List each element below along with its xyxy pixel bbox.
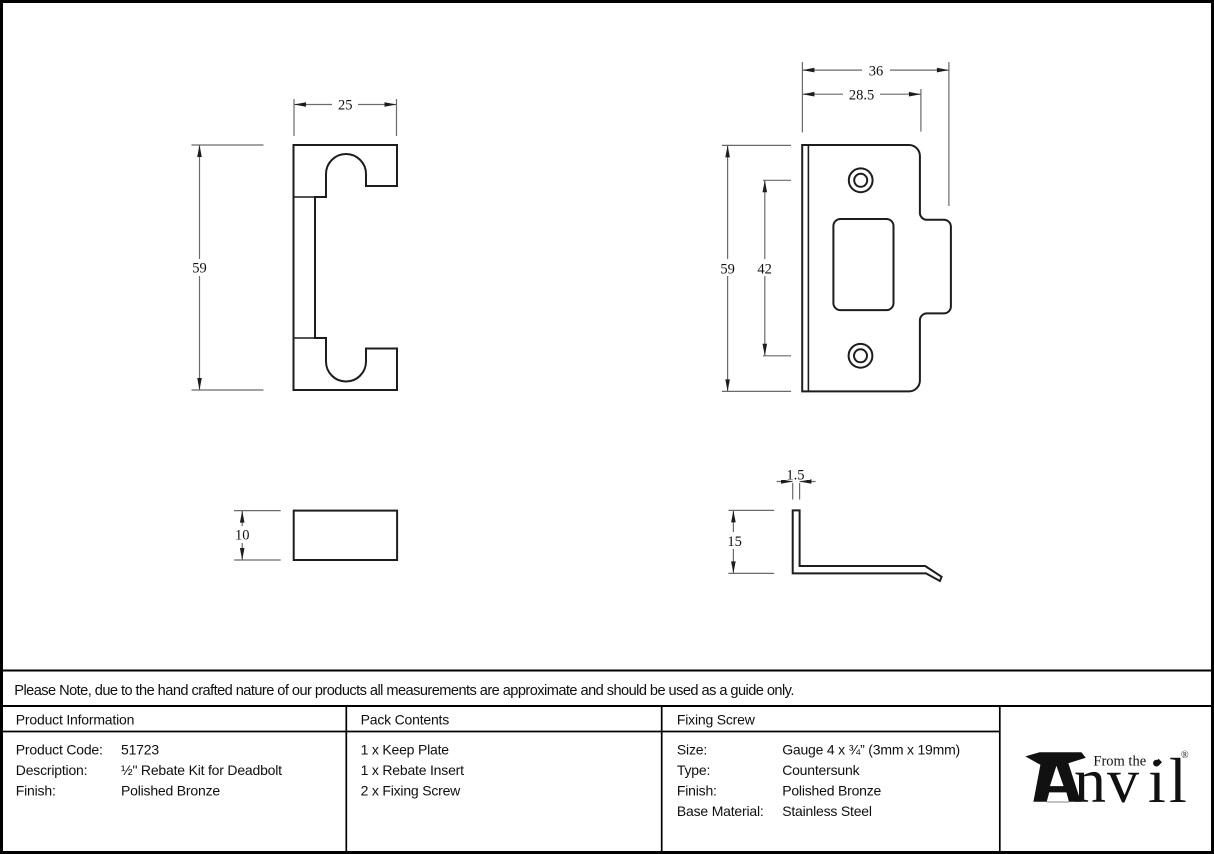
svg-text:®: ® (1181, 750, 1189, 761)
svg-text:Base Material:: Base Material: (677, 803, 764, 819)
svg-text:Finish:: Finish: (16, 783, 56, 799)
svg-text:Polished Bronze: Polished Bronze (782, 783, 881, 799)
svg-text:Description:: Description: (16, 762, 88, 778)
svg-text:Pack Contents: Pack Contents (361, 712, 450, 728)
svg-text:Please Note, due to the hand c: Please Note, due to the hand crafted nat… (14, 683, 794, 699)
svg-text:Size:: Size: (677, 742, 707, 758)
svg-text:Countersunk: Countersunk (782, 762, 860, 778)
svg-text:59: 59 (720, 261, 735, 277)
svg-text:Type:: Type: (677, 762, 710, 778)
svg-text:28.5: 28.5 (849, 87, 874, 103)
svg-text:From the: From the (1093, 753, 1146, 769)
svg-text:10: 10 (235, 528, 250, 544)
svg-text:36: 36 (869, 63, 884, 79)
svg-text:15: 15 (727, 534, 742, 550)
svg-text:1 x Keep Plate: 1 x Keep Plate (361, 742, 450, 758)
svg-text:Fixing Screw: Fixing Screw (677, 712, 756, 728)
svg-text:Stainless Steel: Stainless Steel (782, 803, 872, 819)
svg-text:Product Code:: Product Code: (16, 742, 103, 758)
svg-text:51723: 51723 (121, 742, 159, 758)
svg-text:59: 59 (192, 261, 207, 277)
svg-text:2 x Fixing Screw: 2 x Fixing Screw (361, 783, 462, 799)
svg-text:½" Rebate Kit for Deadbolt: ½" Rebate Kit for Deadbolt (121, 762, 282, 778)
svg-text:25: 25 (338, 98, 353, 114)
svg-text:Product Information: Product Information (16, 712, 134, 728)
svg-text:42: 42 (757, 261, 772, 277)
svg-text:1.5: 1.5 (786, 467, 804, 483)
svg-text:Polished Bronze: Polished Bronze (121, 783, 220, 799)
svg-text:Gauge 4 x ¾” (3mm x 19mm): Gauge 4 x ¾” (3mm x 19mm) (782, 742, 960, 758)
svg-text:1 x Rebate Insert: 1 x Rebate Insert (361, 762, 465, 778)
svg-text:Finish:: Finish: (677, 783, 717, 799)
